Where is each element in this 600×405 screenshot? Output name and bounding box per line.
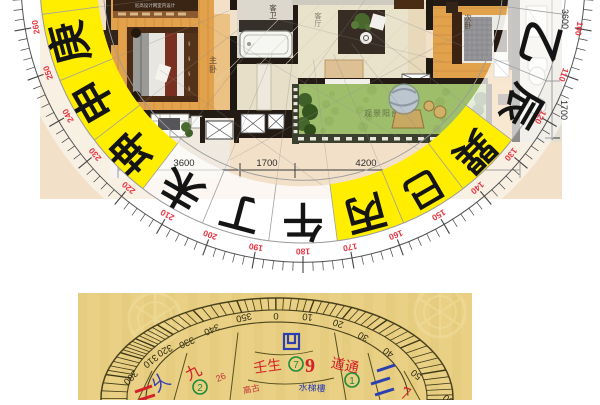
svg-text:3600: 3600 xyxy=(173,158,194,169)
svg-text:180: 180 xyxy=(296,247,310,257)
svg-text:0: 0 xyxy=(273,310,278,321)
svg-text:水梯樓: 水梯樓 xyxy=(298,381,326,393)
svg-text:次卧: 次卧 xyxy=(463,13,472,31)
svg-text:客厅: 客厅 xyxy=(313,11,322,28)
svg-text:酉: 酉 xyxy=(40,0,86,1)
svg-text:4200: 4200 xyxy=(355,158,376,169)
svg-text:主卧: 主卧 xyxy=(209,55,218,74)
svg-text:9: 9 xyxy=(305,355,315,377)
svg-text:1700: 1700 xyxy=(559,100,569,120)
svg-text:午: 午 xyxy=(283,198,324,244)
svg-text:2: 2 xyxy=(197,383,203,394)
svg-text:客卫: 客卫 xyxy=(268,3,277,20)
svg-text:7: 7 xyxy=(293,360,299,371)
svg-text:1700: 1700 xyxy=(256,158,277,169)
svg-text:尼高设计网室内设计: 尼高设计网室内设计 xyxy=(135,2,176,9)
svg-text:10: 10 xyxy=(302,310,314,322)
svg-text:1: 1 xyxy=(349,376,355,387)
svg-text:3600: 3600 xyxy=(560,9,570,29)
